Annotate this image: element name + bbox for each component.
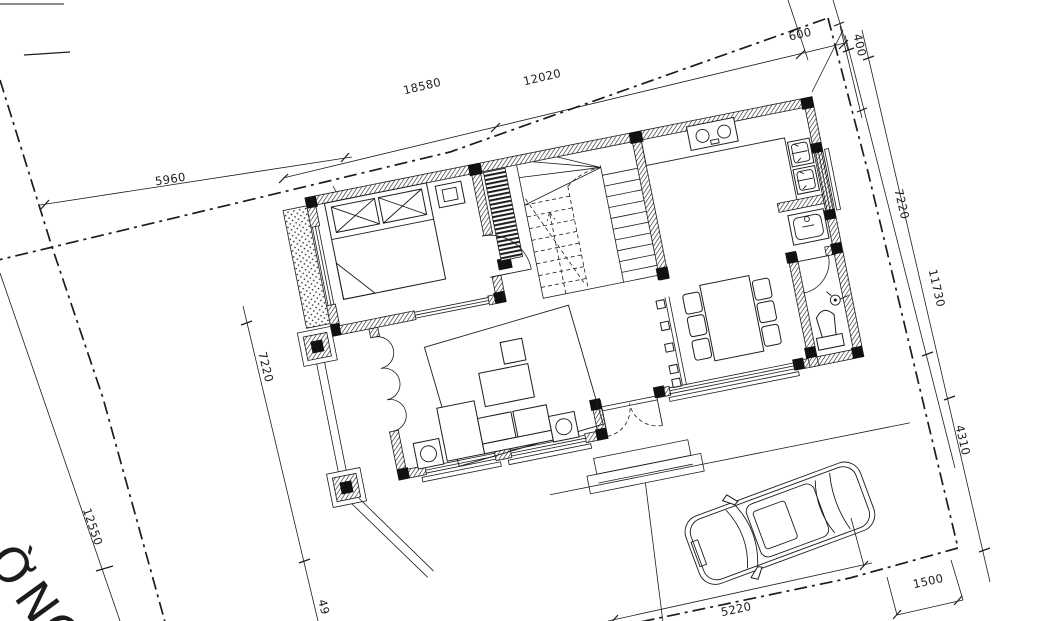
wash-basin-niche — [788, 209, 829, 245]
dim-label-drive-side: 1500 — [912, 571, 945, 591]
dim-line-right-outer — [862, 30, 990, 582]
dim-label-right-side: 11730 — [926, 268, 948, 309]
side-stool — [500, 338, 526, 364]
terrace-column-1 — [297, 326, 337, 366]
dim-label-top-house: 12020 — [522, 66, 563, 88]
dim-label-right-lower: 4310 — [953, 423, 974, 456]
walkway-line — [636, 483, 673, 621]
adjacent-plot-dash — [24, 52, 70, 55]
floor-plan-drawing: 18580 12020 600 400 5960 200 7220 12550 … — [0, 0, 1061, 621]
boundary-bottom — [640, 548, 958, 621]
dim-label-left-front: 5960 — [154, 170, 187, 189]
dim-label-left-plot: 12550 — [80, 506, 106, 547]
dim-label-top-side: 400 — [850, 32, 869, 58]
dim-line-1500 — [897, 600, 963, 615]
terrace-column-2 — [327, 467, 367, 507]
car-windshield — [735, 502, 764, 566]
dim-tick-12550 — [96, 566, 113, 571]
terrace-path-lines — [351, 487, 435, 589]
side-table-right — [549, 411, 580, 442]
car — [677, 449, 883, 598]
terrace-edge-lines — [317, 362, 346, 471]
dim-ticks-1500 — [893, 596, 962, 619]
car-trunk-line — [826, 473, 851, 531]
car-body — [680, 457, 879, 589]
dim-label-right-upper: 7220 — [892, 187, 913, 220]
dim-ext-5220 — [851, 518, 864, 566]
nightstand — [435, 181, 465, 208]
car-body-inner — [686, 463, 873, 584]
dim-ticks-right-outer — [863, 56, 990, 552]
dim-label-top-gap: 600 — [787, 25, 813, 44]
dim-ext-top-right — [788, 0, 848, 92]
edge-fragments — [0, 4, 70, 55]
car-sunroof — [752, 500, 798, 549]
dim-label-bottom-partial: 49 — [315, 598, 332, 616]
floor-plan-canvas: 18580 12020 600 400 5960 200 7220 12550 … — [0, 0, 1061, 621]
street-name-label: ỜNG — [0, 534, 95, 621]
dim-label-drive-bottom: 5220 — [720, 599, 753, 619]
dim-label-top-total: 18580 — [402, 75, 443, 97]
dim-label-left-terrace: 7220 — [255, 350, 276, 383]
car-hood-line — [726, 508, 754, 568]
side-table-left — [413, 438, 444, 469]
entrance-steps — [584, 438, 704, 494]
dim-line-right-inner — [845, 35, 955, 468]
